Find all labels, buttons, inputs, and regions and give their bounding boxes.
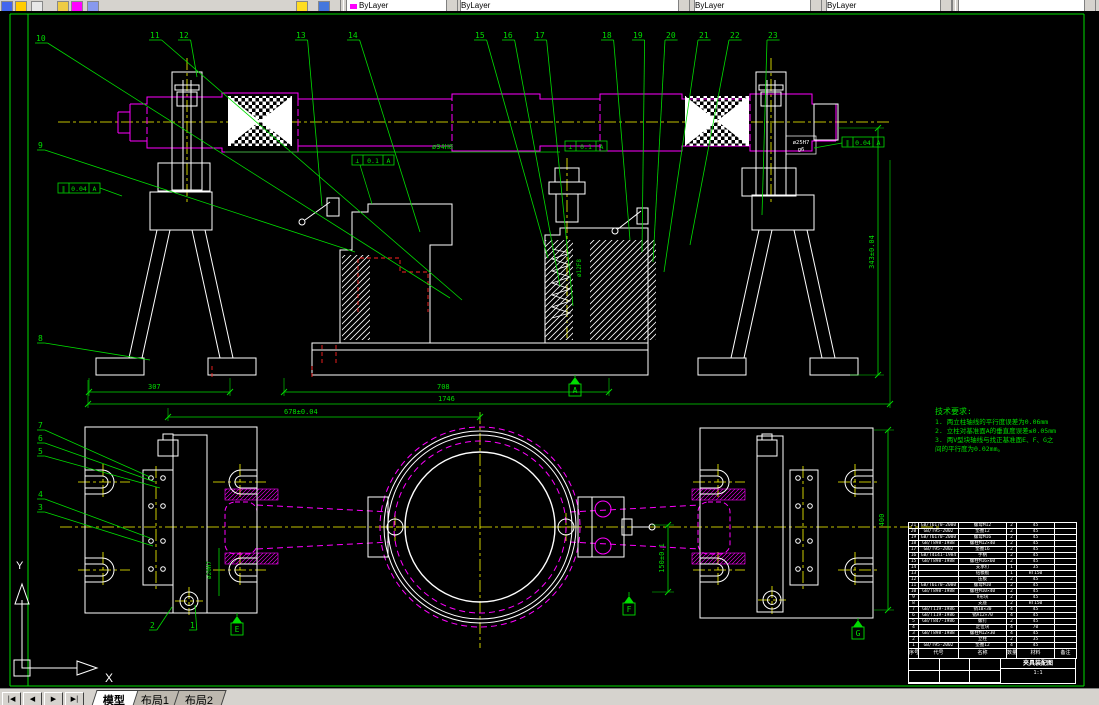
- combo-value: ByLayer: [695, 1, 724, 10]
- balloon-7: 7: [37, 421, 150, 477]
- balloon-9: 9: [37, 141, 355, 252]
- title-block: 夹具装配图 1:1: [908, 659, 1076, 684]
- datum-flag-G: G: [852, 618, 864, 639]
- svg-text:0.04: 0.04: [71, 185, 87, 193]
- fixture-geometry: [85, 72, 873, 623]
- balloon-4: 4: [37, 490, 150, 538]
- svg-text:13: 13: [296, 31, 306, 40]
- balloon-5: 5: [37, 447, 160, 488]
- balloon-18: 18: [601, 31, 630, 240]
- svg-text:3: 3: [38, 503, 43, 512]
- table-header-row: 序号代号名称数量材料备注: [909, 649, 1077, 659]
- balloon-15: 15: [474, 31, 548, 258]
- svg-text:20: 20: [666, 31, 676, 40]
- svg-text:400: 400: [878, 514, 886, 527]
- tab-nav-first[interactable]: |◀: [2, 692, 21, 705]
- svg-text:0.04: 0.04: [855, 139, 871, 147]
- tech-req-line: 2. 立柱对基准面A的垂直度误差≤0.05mm: [935, 427, 1093, 436]
- title-block-grid: [909, 659, 1001, 683]
- svg-text:18: 18: [602, 31, 612, 40]
- annotations: 1234567891011121314151617181920212223307…: [16, 31, 894, 685]
- parts-table: 21GB/T6170-2000螺母M1224520GB/T95-2002垫圈12…: [908, 522, 1077, 659]
- tech-req-line: 3. 两V型块轴线与找正基准面E、F、G之: [935, 436, 1093, 445]
- datum-flag-A: A: [569, 375, 581, 396]
- tech-req-line: 间的平行度为0.02mm。: [935, 445, 1093, 454]
- counterweight-hatch: [228, 96, 749, 146]
- svg-text:10: 10: [36, 34, 46, 43]
- svg-text:678±0.04: 678±0.04: [284, 408, 318, 416]
- color-swatch: [350, 4, 357, 9]
- datum-flag-F: F: [623, 592, 635, 615]
- svg-text:6: 6: [38, 434, 43, 443]
- svg-text:23: 23: [768, 31, 778, 40]
- svg-text:150±0.1: 150±0.1: [658, 543, 666, 573]
- ucs-x-label: X: [105, 671, 113, 685]
- svg-text:A: A: [600, 143, 604, 151]
- svg-text:∥: ∥: [846, 139, 849, 147]
- tech-req-title: 技术要求:: [935, 407, 1093, 416]
- centerlines: [58, 58, 940, 648]
- toolbar-separator: [340, 0, 344, 11]
- dimension-1746: 1746: [85, 160, 893, 408]
- parts-list: 21GB/T6170-2000螺母M1224520GB/T95-2002垫圈12…: [908, 522, 1076, 684]
- balloon-10: 10: [35, 34, 450, 298]
- ucs-y-label: Y: [16, 560, 24, 572]
- feature-control-frame-4: ∥0.04A: [58, 183, 122, 196]
- balloon-20: 20: [653, 31, 678, 262]
- dimension-678±0.04: 678±0.04: [165, 408, 483, 421]
- tab-nav-buttons: |◀◀▶▶|: [0, 688, 84, 705]
- chevron-down-icon[interactable]: ▼: [678, 0, 689, 11]
- balloon-19: 19: [632, 31, 645, 252]
- balloon-14: 14: [347, 31, 420, 232]
- svg-text:8: 8: [38, 334, 43, 343]
- svg-text:307: 307: [148, 383, 161, 391]
- label-2: ø12F8: [576, 259, 583, 277]
- svg-text:21: 21: [699, 31, 709, 40]
- chevron-down-icon[interactable]: ▼: [1084, 0, 1095, 11]
- svg-text:16: 16: [503, 31, 513, 40]
- svg-text:4: 4: [38, 490, 43, 499]
- svg-text:0.1: 0.1: [580, 143, 592, 151]
- combo-value: ByLayer: [461, 1, 490, 10]
- svg-text:9: 9: [38, 141, 43, 150]
- label-5: g6: [798, 147, 805, 153]
- dimension-708: 708: [281, 378, 612, 396]
- svg-text:G: G: [856, 629, 861, 638]
- svg-text:7: 7: [38, 421, 43, 430]
- tab-布局2[interactable]: 布局2: [174, 690, 227, 705]
- tab-nav-prev[interactable]: ◀: [23, 692, 42, 705]
- svg-text:∥: ∥: [62, 185, 65, 193]
- dimension-400: 400: [874, 427, 894, 613]
- label-4: ø25H7: [793, 140, 810, 146]
- svg-text:E: E: [235, 625, 240, 634]
- balloon-13: 13: [295, 31, 322, 206]
- svg-text:2: 2: [150, 621, 155, 630]
- svg-text:0.1: 0.1: [367, 157, 379, 165]
- tab-nav-next[interactable]: ▶: [44, 692, 63, 705]
- svg-text:⊥: ⊥: [356, 157, 360, 165]
- red-auxiliary-lines: [212, 258, 428, 378]
- layout-tab-bar: |◀◀▶▶| 模型布局1布局2: [0, 688, 1099, 705]
- drawing-title: 夹具装配图: [1001, 659, 1075, 669]
- tab-nav-last[interactable]: ▶|: [65, 692, 84, 705]
- layout-tabs: 模型布局1布局2: [94, 690, 220, 705]
- svg-text:19: 19: [633, 31, 643, 40]
- chevron-down-icon[interactable]: ▼: [940, 0, 951, 11]
- section-hatching: [342, 240, 656, 340]
- tech-req-lines: 1. 两立柱轴线的平行度误差为0.06mm2. 立柱对基准面A的垂直度误差≤0.…: [935, 418, 1093, 454]
- cad-application-window: { "toolbar": { "combos": [ {"x":346,"w":…: [0, 0, 1099, 705]
- label-3: ø20H7: [206, 561, 213, 579]
- chevron-down-icon[interactable]: ▼: [810, 0, 821, 11]
- dimension-343±0.04: 343±0.04: [838, 125, 884, 378]
- svg-text:1: 1: [190, 621, 195, 630]
- svg-text:14: 14: [348, 31, 358, 40]
- datum-flag-E: E: [231, 613, 243, 635]
- svg-text:A: A: [93, 185, 97, 193]
- balloon-12: 12: [178, 31, 197, 77]
- feature-control-frame-3: ∥0.04A: [814, 137, 884, 148]
- label-1: ø94H8: [432, 143, 453, 151]
- svg-text:708: 708: [437, 383, 450, 391]
- combo-value: ByLayer: [827, 1, 856, 10]
- svg-text:15: 15: [475, 31, 485, 40]
- svg-text:12: 12: [179, 31, 189, 40]
- drawing-canvas[interactable]: 1234567891011121314151617181920212223307…: [0, 11, 1099, 688]
- feature-control-frame-1: ⊥0.1A: [565, 141, 607, 151]
- feature-control-frame-2: ⊥0.1A: [352, 155, 394, 204]
- diameter-callout-line: [219, 152, 560, 596]
- tab-模型[interactable]: 模型: [91, 690, 138, 705]
- svg-text:F: F: [627, 605, 632, 614]
- svg-text:⊥: ⊥: [569, 143, 573, 151]
- svg-text:A: A: [387, 157, 391, 165]
- balloon-2: 2: [149, 607, 172, 630]
- combo-value: ByLayer: [359, 1, 388, 10]
- dimension-150±0.1: 150±0.1: [652, 522, 674, 595]
- balloon-3: 3: [37, 503, 153, 546]
- dimension-307: 307: [86, 378, 233, 396]
- technical-requirements: 技术要求: 1. 两立柱轴线的平行度误差为0.06mm2. 立柱对基准面A的垂直…: [935, 407, 1093, 454]
- svg-text:A: A: [877, 139, 881, 147]
- svg-text:1746: 1746: [438, 395, 455, 403]
- chevron-down-icon[interactable]: ▼: [446, 0, 457, 11]
- svg-text:22: 22: [730, 31, 740, 40]
- balloon-6: 6: [37, 434, 155, 482]
- svg-text:17: 17: [535, 31, 545, 40]
- svg-text:343±0.04: 343±0.04: [868, 235, 876, 269]
- tech-req-line: 1. 两立柱轴线的平行度误差为0.06mm: [935, 418, 1093, 427]
- toolbar-separator: [952, 0, 956, 11]
- svg-text:5: 5: [38, 447, 43, 456]
- drawing-scale: 1:1: [1001, 669, 1075, 677]
- svg-text:11: 11: [150, 31, 160, 40]
- svg-text:A: A: [573, 386, 578, 395]
